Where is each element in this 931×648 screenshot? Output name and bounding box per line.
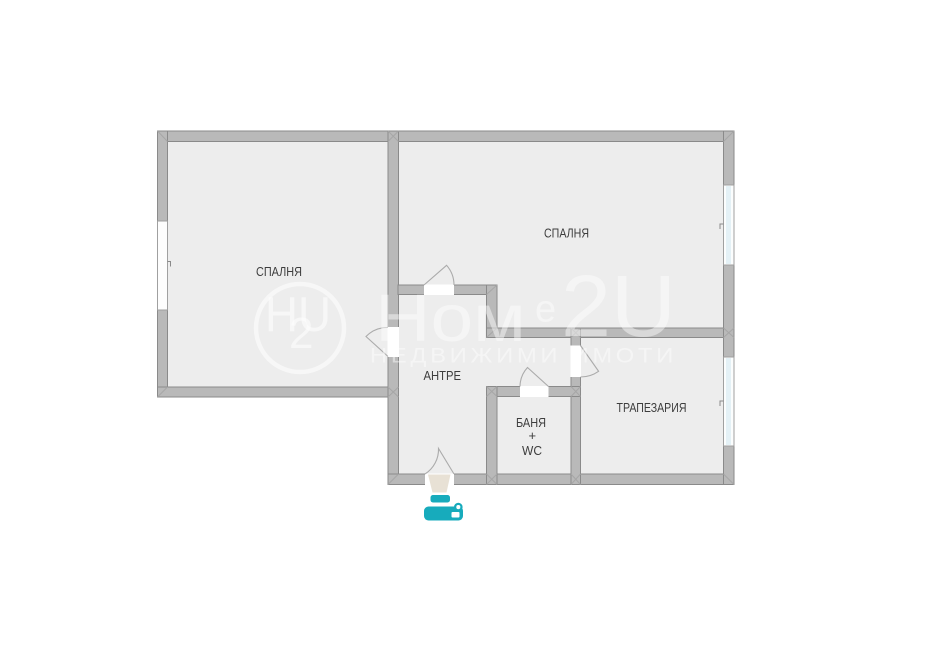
svg-text:+: + xyxy=(529,428,537,443)
svg-text:2U: 2U xyxy=(561,258,676,355)
svg-text:НЕДВИЖИМИ ИМОТИ: НЕДВИЖИМИ ИМОТИ xyxy=(370,344,677,368)
svg-text:АНТРЕ: АНТРЕ xyxy=(424,368,462,383)
svg-text:е: е xyxy=(535,289,556,331)
svg-text:СПАЛНЯ: СПАЛНЯ xyxy=(544,226,589,241)
svg-text:WC: WC xyxy=(522,443,542,458)
svg-text:2: 2 xyxy=(289,309,313,358)
svg-text:СПАЛНЯ: СПАЛНЯ xyxy=(256,264,302,279)
svg-text:ТРАПЕЗАРИЯ: ТРАПЕЗАРИЯ xyxy=(617,400,687,415)
